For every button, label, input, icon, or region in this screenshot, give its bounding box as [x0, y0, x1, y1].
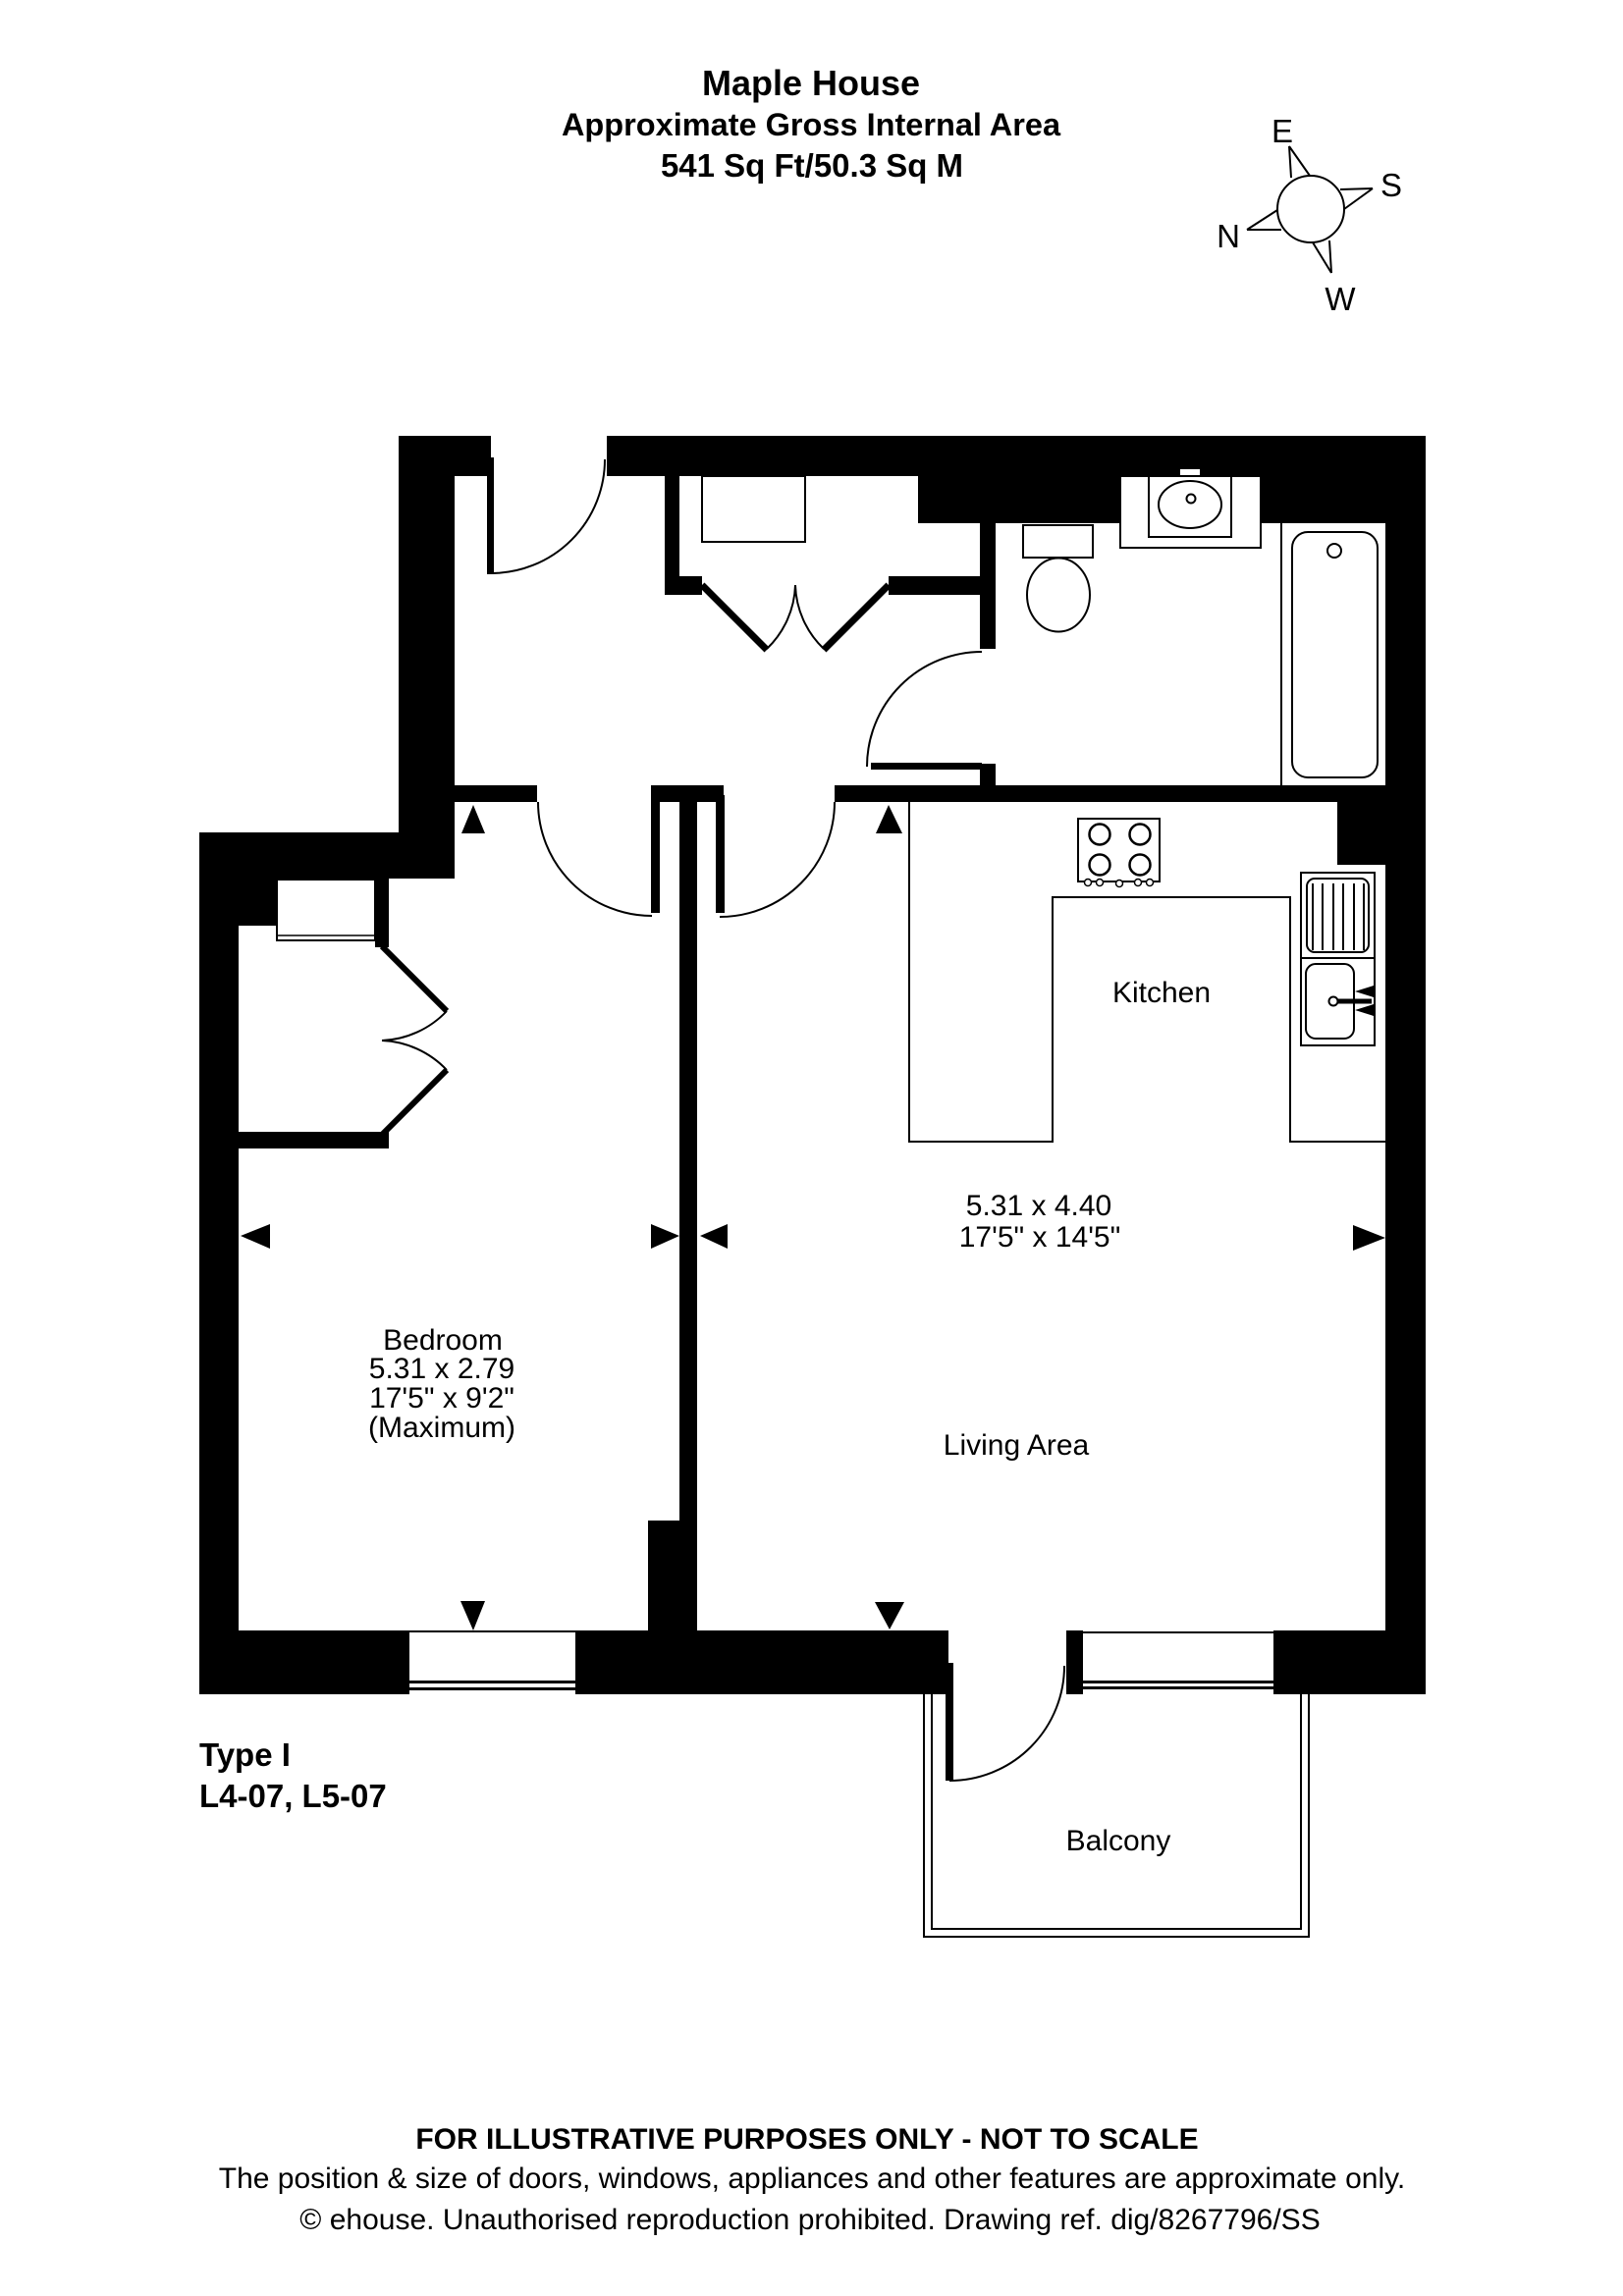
svg-text:17'5" x 9'2": 17'5" x 9'2": [369, 1382, 514, 1415]
svg-text:17'5" x 14'5": 17'5" x 14'5": [959, 1221, 1121, 1254]
svg-text:(Maximum): (Maximum): [368, 1412, 515, 1444]
svg-text:E: E: [1271, 113, 1293, 149]
svg-text:5.31 x 4.40: 5.31 x 4.40: [966, 1190, 1111, 1222]
svg-text:W: W: [1325, 281, 1356, 317]
svg-text:541 Sq Ft/50.3 Sq M: 541 Sq Ft/50.3 Sq M: [661, 147, 963, 184]
svg-text:Approximate Gross Internal Are: Approximate Gross Internal Area: [562, 107, 1061, 142]
svg-text:5.31 x 2.79: 5.31 x 2.79: [369, 1353, 514, 1385]
svg-text:FOR ILLUSTRATIVE PURPOSES ONLY: FOR ILLUSTRATIVE PURPOSES ONLY - NOT TO …: [415, 2123, 1198, 2156]
svg-text:S: S: [1380, 167, 1402, 203]
svg-text:Type I: Type I: [199, 1736, 291, 1773]
svg-text:Living Area: Living Area: [944, 1429, 1090, 1462]
svg-text:Kitchen: Kitchen: [1112, 977, 1211, 1009]
svg-text:N: N: [1217, 218, 1240, 254]
svg-text:Balcony: Balcony: [1066, 1825, 1171, 1857]
svg-text:L4-07, L5-07: L4-07, L5-07: [199, 1778, 387, 1814]
svg-text:The position & size of doors,: The position & size of doors, windows, a…: [219, 2163, 1405, 2195]
svg-text:© ehouse. Unauthorised reprodu: © ehouse. Unauthorised reproduction proh…: [299, 2204, 1320, 2236]
svg-text:Maple House: Maple House: [702, 63, 920, 103]
